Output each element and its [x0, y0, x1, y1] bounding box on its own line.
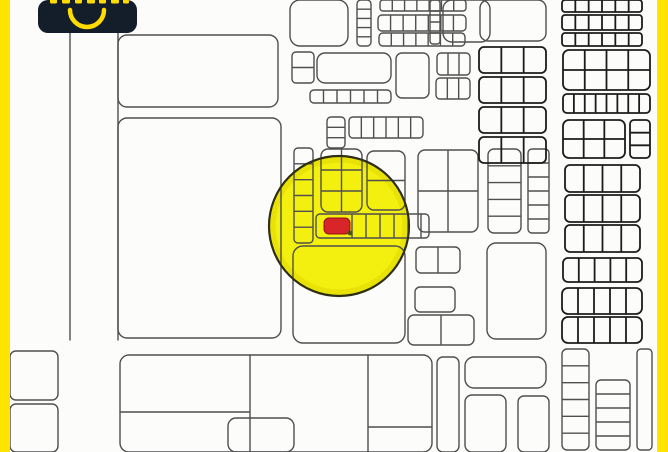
parcel-block: [563, 258, 642, 282]
parcel-block: [528, 149, 549, 233]
parcel-block: [565, 195, 640, 222]
parcel-block: [290, 0, 348, 46]
parcel-block: [378, 15, 466, 31]
cropped-logo-glyph: [123, 0, 129, 4]
parcel-block: [562, 317, 642, 343]
parcel-block: [562, 33, 642, 46]
parcel-block: [118, 118, 281, 338]
brand-logo-badge: [38, 0, 137, 33]
parcel-block: [228, 418, 294, 452]
smile-arc-icon: [70, 10, 104, 27]
parcel-block: [10, 404, 58, 452]
parcel-block: [565, 165, 640, 192]
parcel-block: [630, 120, 650, 158]
cropped-logo-glyph: [62, 0, 70, 4]
smile-logo-icon: [38, 0, 137, 33]
cropped-logo-glyph: [99, 0, 106, 4]
parcel-block: [380, 0, 466, 11]
parcel-block: [436, 78, 470, 99]
parcel-map-canvas: [0, 0, 668, 452]
parcel-block: [637, 349, 652, 450]
parcel-block: [327, 117, 345, 148]
parcel-block: [487, 243, 546, 339]
cropped-logo-glyph: [111, 0, 119, 4]
cropped-logo-glyph: [50, 0, 57, 4]
parcel-block: [317, 53, 391, 83]
parcel-block: [465, 395, 506, 452]
cropped-logo-glyph: [75, 0, 82, 4]
cropped-logo-glyph: [87, 0, 95, 4]
parcel-block: [396, 53, 429, 98]
parcel-block: [562, 349, 589, 450]
parcel-block: [416, 247, 460, 273]
parcel-block: [479, 47, 546, 73]
left-yellow-frame-bar: [0, 0, 10, 452]
parcel-block: [437, 53, 470, 75]
parcel-block: [292, 52, 314, 83]
parcel-block: [118, 35, 278, 107]
parcel-block: [488, 149, 521, 233]
parcel-block: [479, 107, 546, 133]
parcel-block: [357, 0, 371, 46]
parcel-block: [562, 288, 642, 314]
parcel-block: [479, 137, 546, 163]
parcel-block: [310, 90, 391, 103]
parcel-block: [120, 355, 432, 452]
parcel-block: [415, 287, 455, 312]
parcel-block: [437, 357, 459, 452]
parcel-block: [565, 225, 640, 252]
parcel-block: [430, 0, 440, 44]
map-screenshot: [0, 0, 668, 452]
parcel-block: [418, 150, 478, 232]
parcel-block: [563, 94, 650, 113]
parcel-block: [596, 380, 630, 450]
parcel-block: [563, 120, 625, 158]
parcel-block: [349, 117, 423, 138]
parcel-block: [562, 0, 642, 12]
marker-corner-dot: [348, 231, 353, 236]
right-yellow-frame-bar: [657, 0, 668, 452]
parcel-block: [563, 50, 650, 90]
location-marker[interactable]: [324, 218, 350, 234]
parcel-block: [379, 33, 465, 46]
parcel-block: [10, 351, 58, 400]
parcel-block: [518, 396, 549, 452]
parcel-block: [465, 357, 546, 388]
parcel-block: [562, 15, 642, 30]
parcel-block: [479, 77, 546, 103]
parcel-block: [408, 315, 474, 345]
